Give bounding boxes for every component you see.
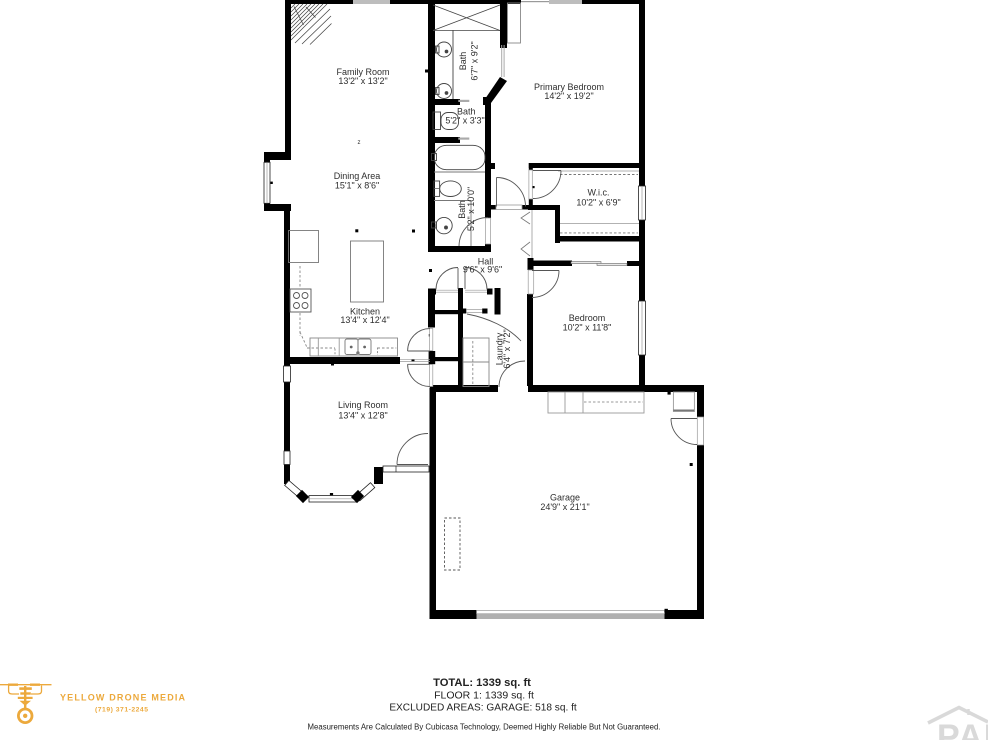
svg-text:z: z xyxy=(358,140,361,146)
svg-text:TOTAL: 1339 sq. ft: TOTAL: 1339 sq. ft xyxy=(433,677,531,689)
svg-text:13'4" x 12'4": 13'4" x 12'4" xyxy=(340,315,389,325)
svg-text:5'2" x 3'3": 5'2" x 3'3" xyxy=(445,116,484,126)
svg-text:(719) 371-2245: (719) 371-2245 xyxy=(95,707,148,714)
svg-text:15'1" x 8'6": 15'1" x 8'6" xyxy=(335,181,379,191)
svg-text:Living Room: Living Room xyxy=(338,400,388,410)
svg-text:24'9" x 21'1": 24'9" x 21'1" xyxy=(540,502,589,512)
svg-text:6'4" x 7'2": 6'4" x 7'2" xyxy=(502,329,512,368)
svg-text:PAR: PAR xyxy=(937,718,988,740)
svg-text:6'7" x 9'2": 6'7" x 9'2" xyxy=(470,41,480,80)
svg-text:14'2" x 19'2": 14'2" x 19'2" xyxy=(544,91,593,101)
svg-text:FLOOR 1: 1339 sq. ft: FLOOR 1: 1339 sq. ft xyxy=(434,690,534,702)
svg-text:EXCLUDED AREAS: GARAGE: 518 sq: EXCLUDED AREAS: GARAGE: 518 sq. ft xyxy=(389,703,577,714)
svg-text:13'2" x 13'2": 13'2" x 13'2" xyxy=(338,76,387,86)
svg-text:10'2" x 11'8": 10'2" x 11'8" xyxy=(563,322,612,332)
svg-text:W.i.c.: W.i.c. xyxy=(588,187,610,197)
svg-text:10'2" x 6'9": 10'2" x 6'9" xyxy=(576,198,620,208)
svg-text:5'2" x 10'0": 5'2" x 10'0" xyxy=(466,187,476,231)
svg-text:YELLOW DRONE MEDIA: YELLOW DRONE MEDIA xyxy=(60,693,186,703)
svg-text:13'4" x 12'8": 13'4" x 12'8" xyxy=(338,410,387,420)
svg-text:Measurements Are Calculated By: Measurements Are Calculated By Cubicasa … xyxy=(308,723,661,732)
svg-text:Dining Area: Dining Area xyxy=(334,171,381,181)
svg-text:9'6" x 9'6": 9'6" x 9'6" xyxy=(463,265,502,275)
svg-text:Bath: Bath xyxy=(458,52,468,71)
